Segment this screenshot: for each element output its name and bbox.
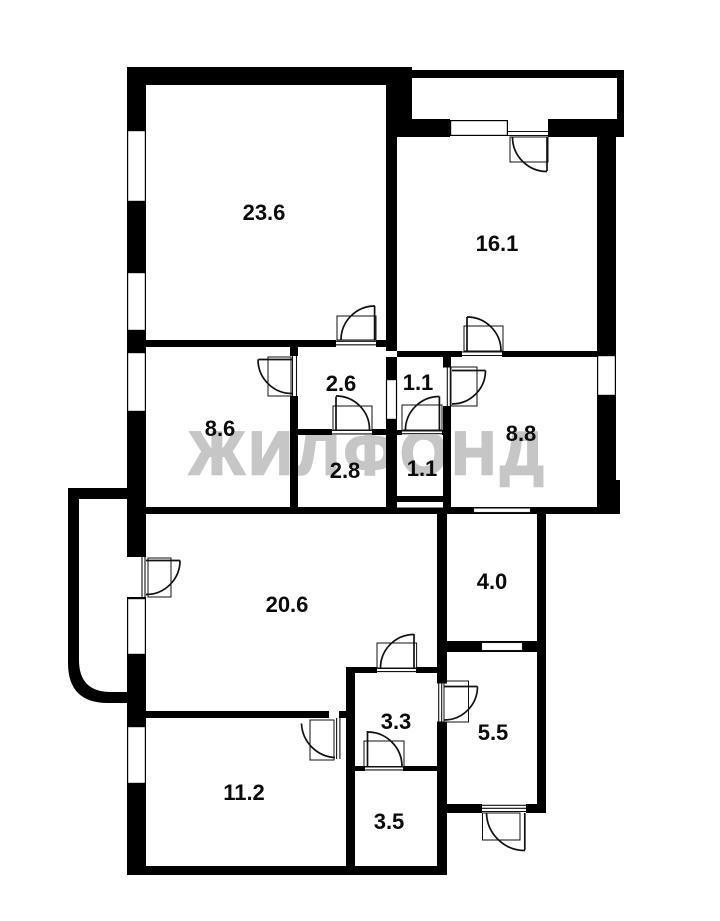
svg-text:23.6: 23.6 [243,200,286,225]
svg-text:2.6: 2.6 [326,371,357,396]
svg-text:16.1: 16.1 [476,231,519,256]
svg-text:20.6: 20.6 [266,592,309,617]
svg-text:11.2: 11.2 [223,780,265,805]
svg-text:1.1: 1.1 [407,456,438,481]
svg-text:5.5: 5.5 [478,720,509,745]
svg-text:8.6: 8.6 [205,416,236,441]
svg-text:1.1: 1.1 [403,370,434,395]
svg-text:3.3: 3.3 [381,709,412,734]
svg-text:4.0: 4.0 [477,569,508,594]
svg-text:2.8: 2.8 [330,458,361,483]
svg-text:3.5: 3.5 [374,809,405,834]
svg-text:8.8: 8.8 [506,421,537,446]
